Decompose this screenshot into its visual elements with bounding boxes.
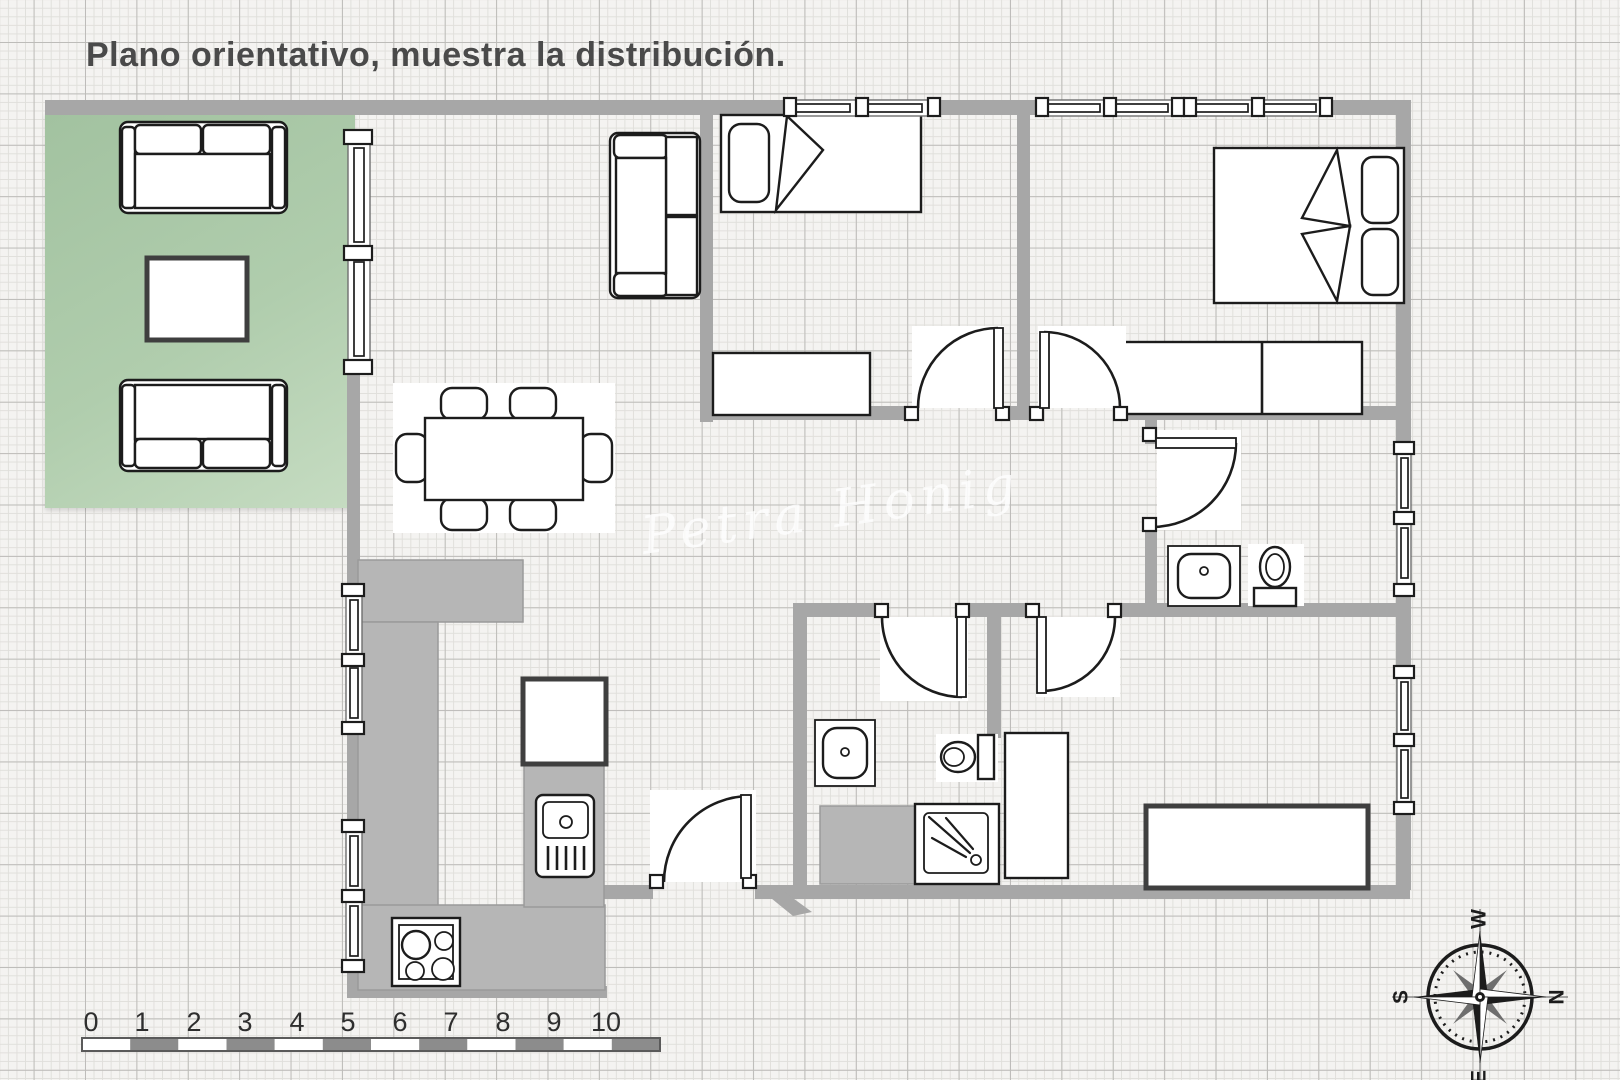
door-entrance [650,790,756,888]
scale-label: 10 [591,1007,621,1037]
door-leaf [1040,332,1049,408]
window-bedroom2-top-left [1036,98,1184,116]
window-bedroom2-top-right [1184,98,1332,116]
scale-bar: 0 1 2 3 4 5 6 7 8 9 10 [82,1007,660,1051]
pillow [1362,157,1398,223]
compass-west-label: W [1468,909,1491,929]
window-right-upper [1394,442,1414,596]
scale-ruler [82,1038,660,1051]
washbasin-main-bath [815,720,875,786]
double-bed [1214,148,1404,303]
scale-label: 8 [495,1007,510,1037]
pillow [1362,229,1398,295]
compass-south-label: S [1390,990,1413,1004]
dining-chair [396,434,428,482]
kitchen [358,560,606,990]
wall-bath2-bed3-divider [987,603,1001,738]
scale-label: 9 [546,1007,561,1037]
dining-chair [510,388,556,420]
bedroom3 [1005,733,1368,888]
scale-label: 7 [443,1007,458,1037]
window-kitchen-upper [342,584,364,734]
door-leaf [994,328,1003,408]
door-leaf [741,795,751,878]
door-leaf [957,617,966,697]
wardrobe-bedroom3 [1005,733,1068,878]
dining-chair [441,388,487,420]
sofa-top [120,122,287,213]
scale-label: 3 [237,1007,252,1037]
wardrobe-bedroom1 [713,353,870,415]
compass-east-label: E [1468,1070,1491,1080]
page-title: Plano orientativo, muestra la distribuci… [86,36,786,75]
dining-area [393,383,615,533]
window-living-room [344,130,372,374]
kitchen-sink [536,795,594,877]
kitchen-appliance [523,679,606,764]
dining-chair [441,498,487,530]
dining-chair [510,498,556,530]
shower [915,804,999,884]
living-room [120,122,287,471]
window-kitchen-lower [342,820,364,972]
wall-mid-a [793,603,887,617]
door-bedroom3 [1026,604,1121,697]
kitchen-counter-left [358,622,438,913]
sofa-bottom [120,380,287,471]
window-bedroom1-top [784,98,940,116]
wall-bedroom1-left [700,100,713,422]
bedroom2 [1115,148,1404,414]
scale-label: 5 [340,1007,355,1037]
toilet-main-bath [936,734,998,782]
scale-label: 1 [134,1007,149,1037]
pillow [729,124,769,202]
scale-label: 2 [186,1007,201,1037]
scale-label: 6 [392,1007,407,1037]
stove [392,918,460,986]
door-leaf [1156,438,1236,448]
washing-machine [820,806,915,884]
sideboard-bedroom3 [1146,806,1368,888]
bedroom1 [713,115,921,415]
washbasin-small-bath [1168,546,1240,606]
dining-chair [580,434,612,482]
door-bathroom-small [1143,428,1241,531]
door-bedroom1 [905,326,1009,420]
toilet-small-bath [1248,544,1304,606]
kitchen-counter-top [358,560,523,622]
compass-north-label: N [1546,989,1569,1004]
floor-plan-page: Plano orientativo, muestra la distribuci… [0,0,1620,1080]
coffee-table [147,258,247,340]
window-right-lower [1394,666,1414,814]
wall-bottom-hall [598,885,653,899]
wall-bath2-left [793,603,807,895]
bathroom-main [815,720,999,884]
dining-table [425,418,583,500]
floor-plan-drawing: 0 1 2 3 4 5 6 7 8 9 10 [0,0,1620,1080]
scale-label: 4 [289,1007,304,1037]
compass-rose: W N E S [1390,909,1569,1080]
wall-bedroom-divider [1017,100,1030,420]
door-leaf [1037,617,1046,693]
single-bed [721,115,921,212]
wardrobe-bedroom2 [1115,342,1362,414]
bathroom-small [1168,544,1304,606]
door-bedroom2 [1030,326,1127,420]
wall-bath1-left-lower [1145,524,1157,610]
door-bathroom-main [875,604,969,701]
hall-sofa [610,133,700,298]
scale-label: 0 [83,1007,98,1037]
